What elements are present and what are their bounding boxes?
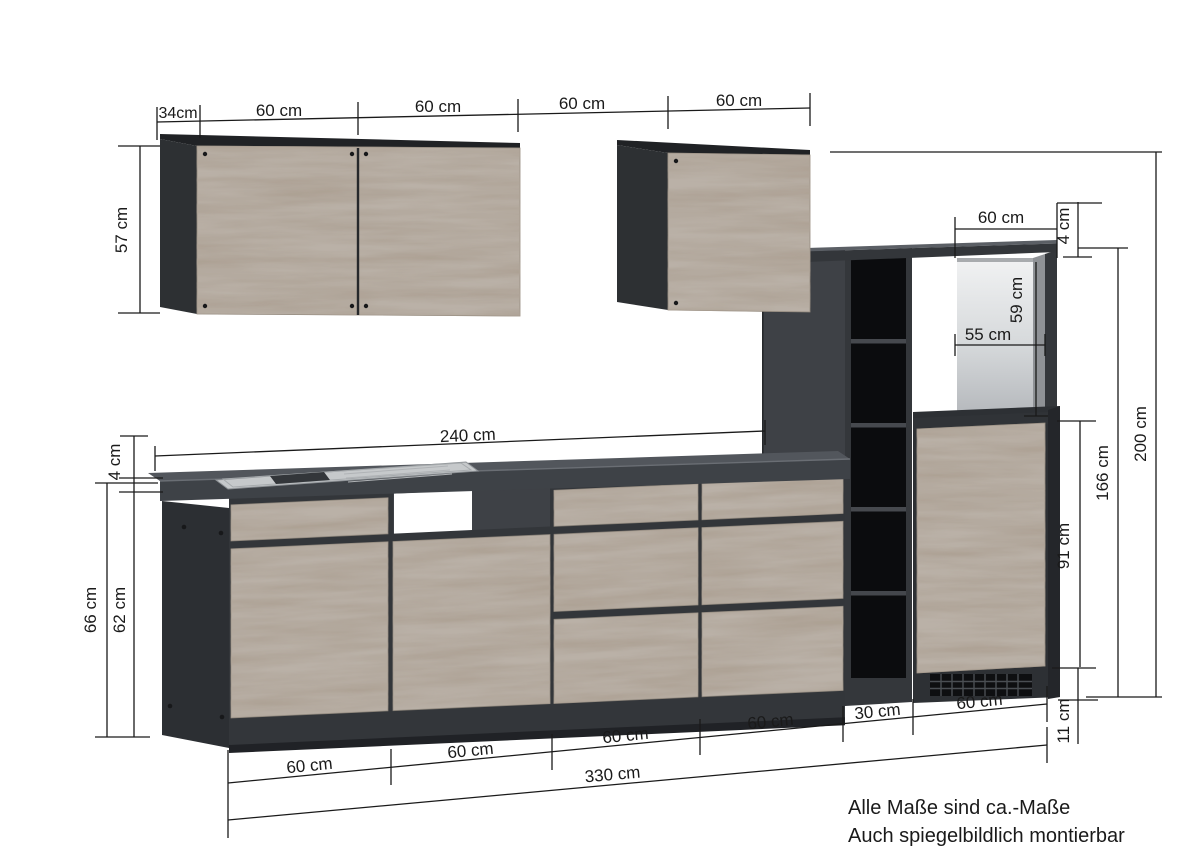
dim-label-niche-height: 59 cm: [1007, 277, 1026, 323]
wall-cabinet-right-side: [617, 145, 668, 310]
dim-label-wall-width-1: 60 cm: [256, 101, 302, 120]
dim-label-wall-height: 57 cm: [112, 207, 131, 253]
dim-label-bottom-2: 60 cm: [447, 739, 495, 762]
base-side-panel: [162, 501, 229, 748]
diagram-canvas: 34cm 60 cm 60 cm 60 cm 60 cm 57 cm 4 cm …: [0, 0, 1200, 857]
dim-label-worktop-thickness: 4 cm: [105, 444, 124, 481]
drawer-front: [702, 606, 843, 696]
dim-label-wall-width-2: 60 cm: [415, 97, 461, 116]
shelf-board: [851, 339, 906, 344]
wall-cabinet-right: [617, 140, 810, 312]
wall-cabinet-right-door: [668, 153, 810, 312]
drawer-front: [554, 484, 698, 526]
drawer-front: [702, 521, 843, 604]
niche-right-frame: [1045, 250, 1057, 416]
dim-label-wall-depth: 34cm: [158, 105, 197, 122]
dim-label-wall-width-4: 60 cm: [716, 91, 762, 110]
dimension-top-widths: 34cm 60 cm 60 cm 60 cm 60 cm: [157, 91, 810, 140]
dim-label-bottom-6: 60 cm: [956, 690, 1004, 713]
niche-side-wall: [1033, 254, 1045, 420]
shelf-board: [851, 591, 906, 596]
dim-label-niche-width: 60 cm: [978, 208, 1024, 227]
drawer-front: [554, 528, 698, 611]
drawer-front: [231, 498, 388, 541]
drawer-front: [702, 477, 843, 519]
dim-label-wall-width-3: 60 cm: [559, 94, 605, 113]
dim-label-tall-body-height: 166 cm: [1093, 445, 1112, 501]
drawer-front: [554, 613, 698, 703]
dim-label-base-total-height: 66 cm: [81, 587, 100, 633]
dim-label-base-body-height: 62 cm: [110, 587, 129, 633]
dim-label-bottom-3: 60 cm: [602, 724, 650, 747]
base-cabinets: [162, 469, 845, 753]
open-slot-through: [394, 490, 472, 534]
door-front: [393, 535, 550, 711]
dimension-left-heights: 4 cm 66 cm 62 cm: [81, 436, 163, 737]
dim-label-plinth-height: 11 cm: [1054, 698, 1073, 743]
shelf-board: [851, 423, 906, 428]
dim-label-niche-inner-width: 55 cm: [965, 325, 1011, 344]
dim-label-top-panel-thickness: 4 cm: [1054, 208, 1073, 245]
footer-note-line2: Auch spiegelbildlich montierbar: [848, 825, 1125, 847]
wall-cabinet-left-side: [160, 139, 197, 314]
kitchen-dimension-drawing: 34cm 60 cm 60 cm 60 cm 60 cm 57 cm 4 cm …: [0, 0, 1200, 857]
shelf-column: [845, 248, 912, 706]
wall-cabinet-left: [160, 134, 520, 316]
tall-cabinet-door: [917, 423, 1045, 673]
door-front: [231, 542, 388, 718]
dim-label-tall-total-height: 200 cm: [1131, 406, 1150, 462]
shelf-board: [851, 507, 906, 512]
footer-notes: Alle Maße sind ca.-Maße Auch spiegelbild…: [848, 797, 1125, 847]
dim-label-run-length: 240 cm: [440, 425, 496, 446]
tall-cabinet: [913, 406, 1060, 703]
dim-label-bottom-5: 30 cm: [854, 700, 902, 723]
dim-label-tall-door-height: 91 cm: [1054, 523, 1073, 569]
footer-note-line1: Alle Maße sind ca.-Maße: [848, 797, 1070, 819]
dimension-wall-height: 57 cm: [112, 146, 160, 313]
